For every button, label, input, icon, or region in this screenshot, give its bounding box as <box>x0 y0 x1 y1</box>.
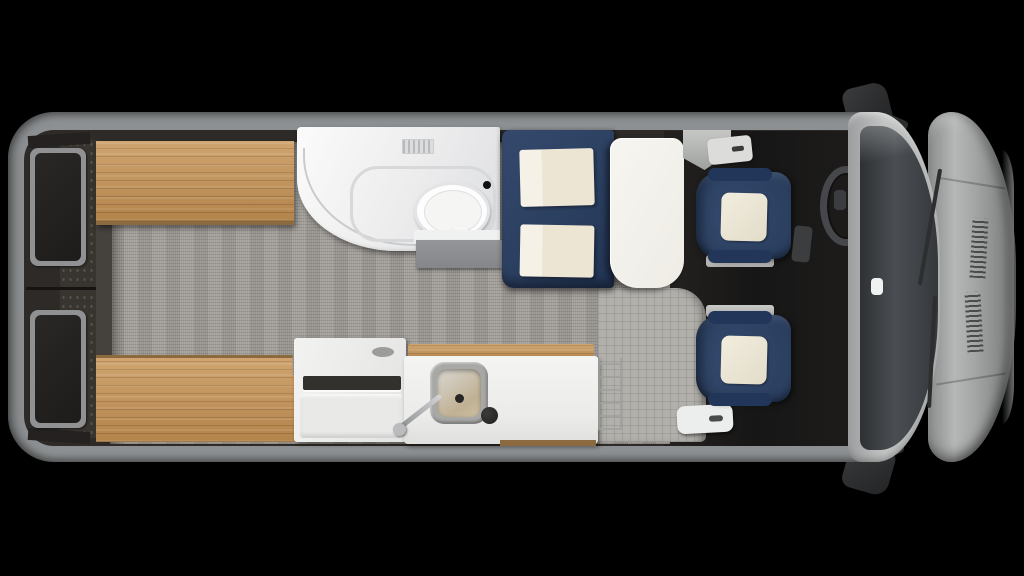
bath-vent-icon <box>402 139 434 154</box>
dinette-cushion <box>520 224 595 277</box>
steering-wheel-hub <box>834 190 846 210</box>
dinette-cushion <box>519 148 594 207</box>
entry-handle-trim <box>707 135 753 165</box>
faucet-base <box>393 423 406 436</box>
burner-knob <box>481 407 498 424</box>
counter-wood-edge <box>500 440 596 446</box>
seat-cushion <box>720 335 767 384</box>
appliance-knob <box>372 347 394 357</box>
bath-step <box>416 240 502 268</box>
rear-bed-bench-bottom <box>96 355 304 442</box>
hood-vent-icon <box>964 292 983 353</box>
step-slot <box>709 415 723 422</box>
rear-door-window <box>30 310 86 428</box>
galley-appliance <box>294 338 406 442</box>
handle-slot <box>732 146 744 152</box>
rear-bed-bench-top <box>96 141 294 225</box>
rearview-mirror-icon <box>913 136 938 154</box>
rear-door-glass <box>35 315 81 423</box>
front-bumper <box>1002 150 1014 424</box>
appliance-slot <box>303 376 401 390</box>
rear-threshold <box>96 221 112 356</box>
counter-end-rack <box>598 358 622 430</box>
windshield-badge <box>871 278 883 295</box>
hood-vent-icon <box>969 218 988 279</box>
captain-chair-passenger <box>696 315 791 402</box>
dinette-table <box>610 138 684 288</box>
captain-chair-driver <box>696 172 791 259</box>
rear-door-window <box>30 148 86 266</box>
sink-drain <box>455 394 464 403</box>
van-floorplan-scene <box>0 0 1024 576</box>
entry-step <box>676 404 733 435</box>
dashboard-console <box>791 225 813 263</box>
rear-door-seam <box>26 287 98 290</box>
rear-door-glass <box>35 153 81 261</box>
seat-cushion <box>720 192 767 241</box>
sink-basin <box>437 369 481 417</box>
bath-drain-dot <box>483 181 491 189</box>
appliance-panel <box>300 394 402 438</box>
